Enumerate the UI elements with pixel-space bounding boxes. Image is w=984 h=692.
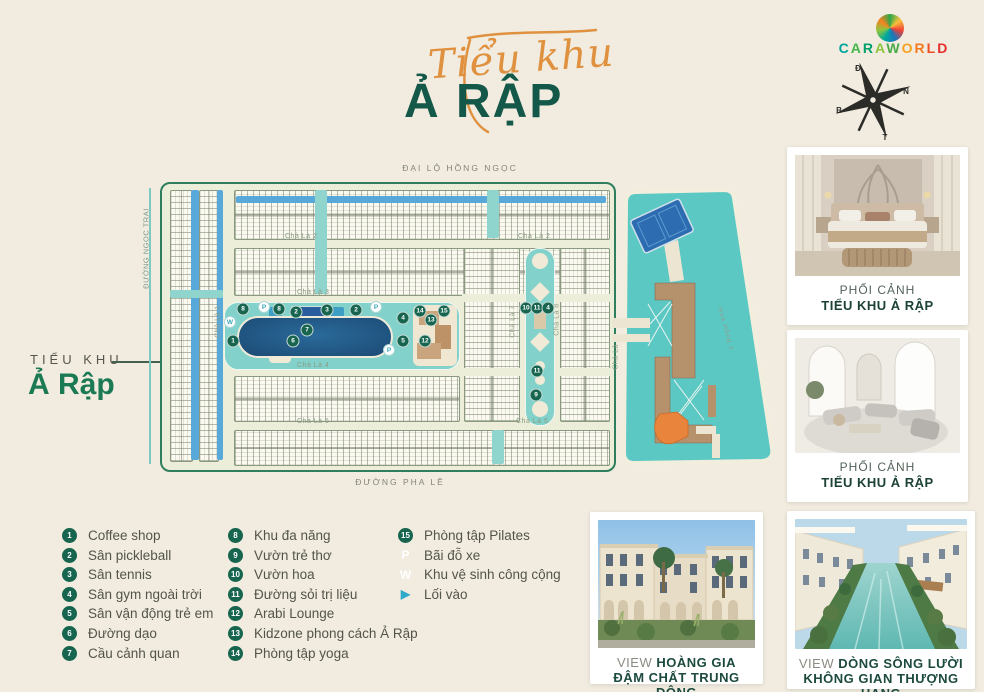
teal-walk [315,190,327,294]
legend-label: Đường sỏi trị liệu [254,587,357,602]
legend-label: Đường dạo [88,626,157,641]
legend-label: Khu đa năng [254,528,331,543]
street-cha-la-7: Chà Là 7 [510,292,517,352]
side-label-line2: Ả Rập [28,368,115,402]
legend-item: 2Sân pickleball [62,548,213,563]
photo-card-river-view: VIEW DÒNG SÔNG LƯỜI KHÔNG GIAN THƯỢNG HẠ… [787,511,975,689]
legend-item: PBãi đỗ xe [398,548,561,563]
legend-item: ▶Lối vào [398,587,561,602]
legend-label: Kidzone phong cách Ả Rập [254,626,418,641]
plot-block [234,376,460,422]
legend-label: Sân tennis [88,567,152,582]
legend-marker-9: 9 [228,548,243,563]
street-duong-pha-le: ĐƯỜNG PHA LÊ [300,477,500,487]
masterplan-map [160,182,616,472]
legend-item: 11Đường sỏi trị liệu [228,587,418,602]
legend-item: 1Coffee shop [62,528,213,543]
canal [191,190,199,460]
brand-letter: C [839,40,851,56]
page-title: Ả RẬP [404,74,563,129]
townhouse-photo [598,520,755,648]
caraworld-logo: CARAWORLD [814,40,974,56]
lake-parcel: Hoa Hồng 1 [612,182,782,474]
street-cha-la-5: Chà Là 5 [297,418,329,425]
lagoon-pool [237,316,393,358]
photo-caption-view: VIEW HOÀNG GIA [598,655,755,670]
legend-marker-8: 8 [228,528,243,543]
legend-marker-14: 14 [228,646,243,661]
legend-marker-11: 11 [228,587,243,602]
brand-letter: D [937,40,949,56]
masterplan-poster: Tiểu khu Ả RẬP CARAWORLD Đ N B T TIỂU KH… [0,0,984,692]
lazy-river-photo [795,519,967,649]
photo-caption-main: TIỂU KHU Ả RẬP [795,475,960,490]
legend-label: Phòng tập Pilates [424,528,530,543]
photo-card-bedroom: PHỐI CẢNH TIỂU KHU Ả RẬP [787,147,968,325]
legend-marker-2: 2 [62,548,77,563]
legend-col-2: 8Khu đa năng9Vườn trẻ thơ10Vườn hoa11Đườ… [228,528,418,665]
lake-path [712,434,720,458]
legend-label: Cầu cảnh quan [88,646,180,661]
legend-marker-5: 5 [62,606,77,621]
clubhouse [413,305,457,366]
legend-item: 6Đường dạo [62,626,213,641]
legend-item: 3Sân tennis [62,567,213,582]
street-cha-la-4: Chà Là 4 [297,362,329,369]
plot-block [560,248,610,422]
brand-letter: A [875,40,886,56]
street-cha-la-5b: Chà Là 5 [516,418,548,425]
park-diamond [530,332,550,352]
canal [236,196,606,203]
brand-letter: R [863,40,875,56]
street-cha-la-8: Chà Là 8 [554,290,561,350]
legend-item: 5Sân vận động trẻ em [62,606,213,621]
legend-marker-P: P [398,548,413,563]
legend-item: 14Phòng tập yoga [228,646,418,661]
photo-caption-main: TIỂU KHU Ả RẬP [795,298,960,313]
legend-item: 4Sân gym ngoài trời [62,587,213,602]
teal-walk [492,430,504,464]
resort-building-wing [708,385,716,417]
legend-label: Vườn trẻ thơ [254,548,332,563]
street-cha-la-1: Chà Là 1 [215,292,222,352]
side-label-line1: TIỂU KHU [30,352,123,367]
legend-label: Bãi đỗ xe [424,548,480,563]
plot-block [170,190,193,462]
bridge [612,318,650,328]
svg-text:B: B [836,106,842,115]
lake-path [696,426,716,434]
legend-col-1: 1Coffee shop2Sân pickleball3Sân tennis4S… [62,528,213,665]
street-cha-la-3: Chà Là 3 [297,289,329,296]
caraworld-globe-icon [876,14,904,42]
legend-marker-1: 1 [62,528,77,543]
photo-caption-view2: ĐẬM CHẤT TRUNG ĐÔNG [598,670,755,692]
legend-marker-7: 7 [62,646,77,661]
photo-caption-view: VIEW DÒNG SÔNG LƯỜI [795,656,967,671]
legend-item: 8Khu đa năng [228,528,418,543]
legend-label: Vườn hoa [254,567,315,582]
legend-item: 12Arabi Lounge [228,606,418,621]
brand-letter: A [851,40,863,56]
photo-caption-view2: KHÔNG GIAN THƯỢNG HẠNG [795,671,967,692]
road-line-left [149,188,151,464]
clubhouse-wing [419,311,439,325]
lounge-photo [795,338,960,453]
legend-marker-6: 6 [62,626,77,641]
legend-col-3: 15Phòng tập PilatesPBãi đỗ xeWKhu vệ sin… [398,528,561,606]
legend-label: Khu vệ sinh công cộng [424,567,561,582]
legend-marker-15: 15 [398,528,413,543]
brand-letter: L [927,40,938,56]
legend-label: Phòng tập yoga [254,646,349,661]
bedroom-photo [795,155,960,276]
legend-label: Sân vận động trẻ em [88,606,213,621]
legend-item: 15Phòng tập Pilates [398,528,561,543]
park-strip [525,248,555,426]
svg-text:Đ: Đ [855,64,861,73]
legend-item: 13Kidzone phong cách Ả Rập [228,626,418,641]
legend-item: WKhu vệ sinh công cộng [398,567,561,582]
park-circle [532,253,548,269]
bridge [612,334,650,342]
photo-card-lounge: PHỐI CẢNH TIỂU KHU Ả RẬP [787,330,968,502]
legend-label: Coffee shop [88,528,161,543]
street-cha-la-2: Chà Là 2 [285,233,317,240]
photo-caption-sub: PHỐI CẢNH [795,460,960,474]
park-circle [532,401,548,417]
photo-card-royal-view: VIEW HOÀNG GIA ĐẬM CHẤT TRUNG ĐÔNG [590,512,763,684]
legend-label: Arabi Lounge [254,606,334,621]
park-dot [535,361,545,371]
park-beds [534,307,546,329]
legend-label: Lối vào [424,587,468,602]
park-dot [535,375,545,385]
entrance-arrow-icon: ▶ [398,587,413,602]
legend-label: Sân pickleball [88,548,171,563]
legend-marker-13: 13 [228,626,243,641]
legend-marker-12: 12 [228,606,243,621]
legend-marker-W: W [398,567,413,582]
photo-caption-sub: PHỐI CẢNH [795,283,960,297]
brand-letter: W [886,40,901,56]
plot-block [234,430,610,466]
svg-text:N: N [903,87,909,96]
legend-item: 10Vườn hoa [228,567,418,582]
brand-letter: R [915,40,927,56]
legend-marker-4: 4 [62,587,77,602]
legend-marker-10: 10 [228,567,243,582]
side-label-connector [112,361,160,363]
legend-label: Sân gym ngoài trời [88,587,202,602]
street-dai-lo-hong-ngoc: ĐẠI LỘ HỒNG NGỌC [300,163,620,173]
legend-item: 9Vườn trẻ thơ [228,548,418,563]
legend-marker-3: 3 [62,567,77,582]
svg-text:T: T [883,133,888,142]
street-cha-la-2b: Chà Là 2 [518,233,550,240]
legend-item: 7Cầu cảnh quan [62,646,213,661]
compass-rose-icon: Đ N B T [831,58,915,142]
clubhouse-wing [417,343,441,359]
brand-letter: O [902,40,915,56]
teal-walk [487,190,499,238]
park-diamond [530,282,550,302]
